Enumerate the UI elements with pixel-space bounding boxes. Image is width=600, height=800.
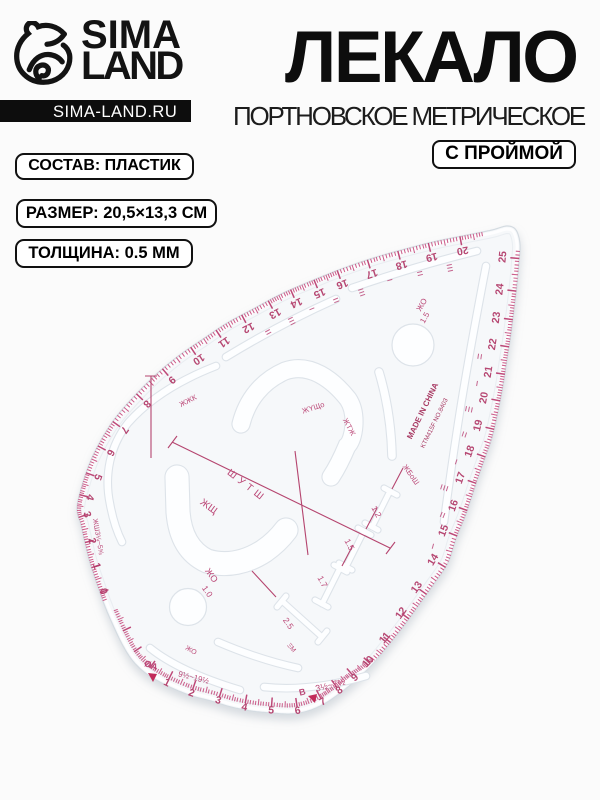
svg-text:23: 23 — [490, 311, 503, 324]
svg-text:24: 24 — [493, 283, 506, 296]
svg-text:25: 25 — [496, 250, 509, 263]
svg-text:20: 20 — [456, 243, 470, 257]
svg-text:5: 5 — [268, 704, 275, 716]
svg-text:4: 4 — [240, 701, 248, 714]
svg-text:20: 20 — [477, 391, 491, 405]
svg-text:22: 22 — [486, 337, 500, 351]
svg-text:21: 21 — [482, 365, 496, 379]
